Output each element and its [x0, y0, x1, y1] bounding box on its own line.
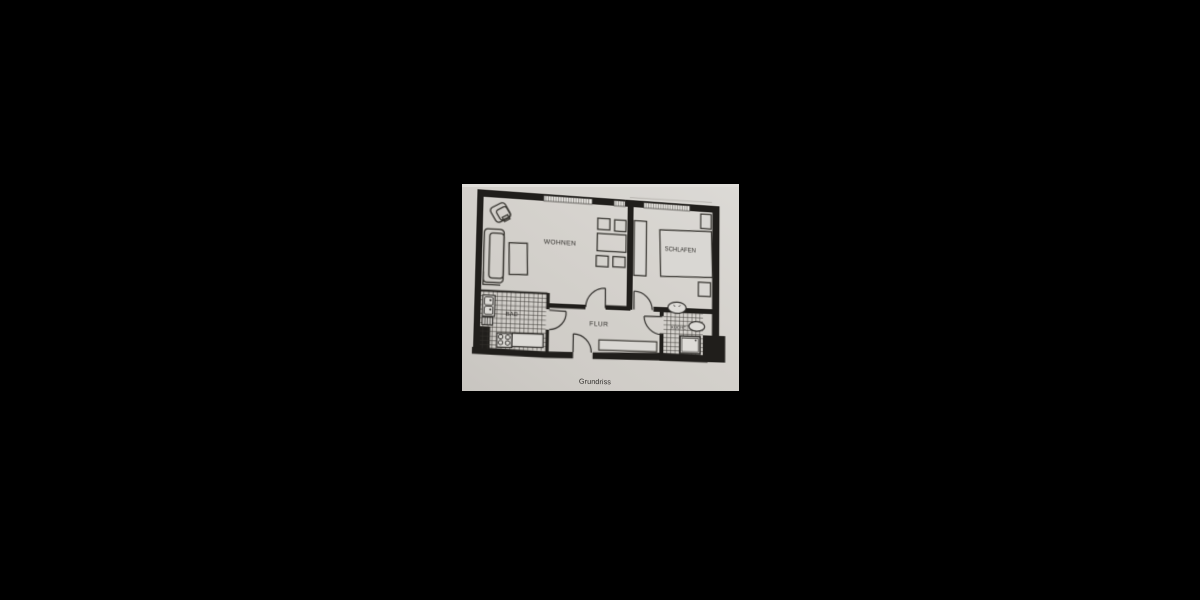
svg-text:FLUR: FLUR [589, 321, 608, 329]
svg-text:KÜCHE: KÜCHE [671, 324, 686, 330]
svg-text:WOHNEN: WOHNEN [544, 239, 576, 248]
svg-text:BAD: BAD [506, 312, 518, 318]
